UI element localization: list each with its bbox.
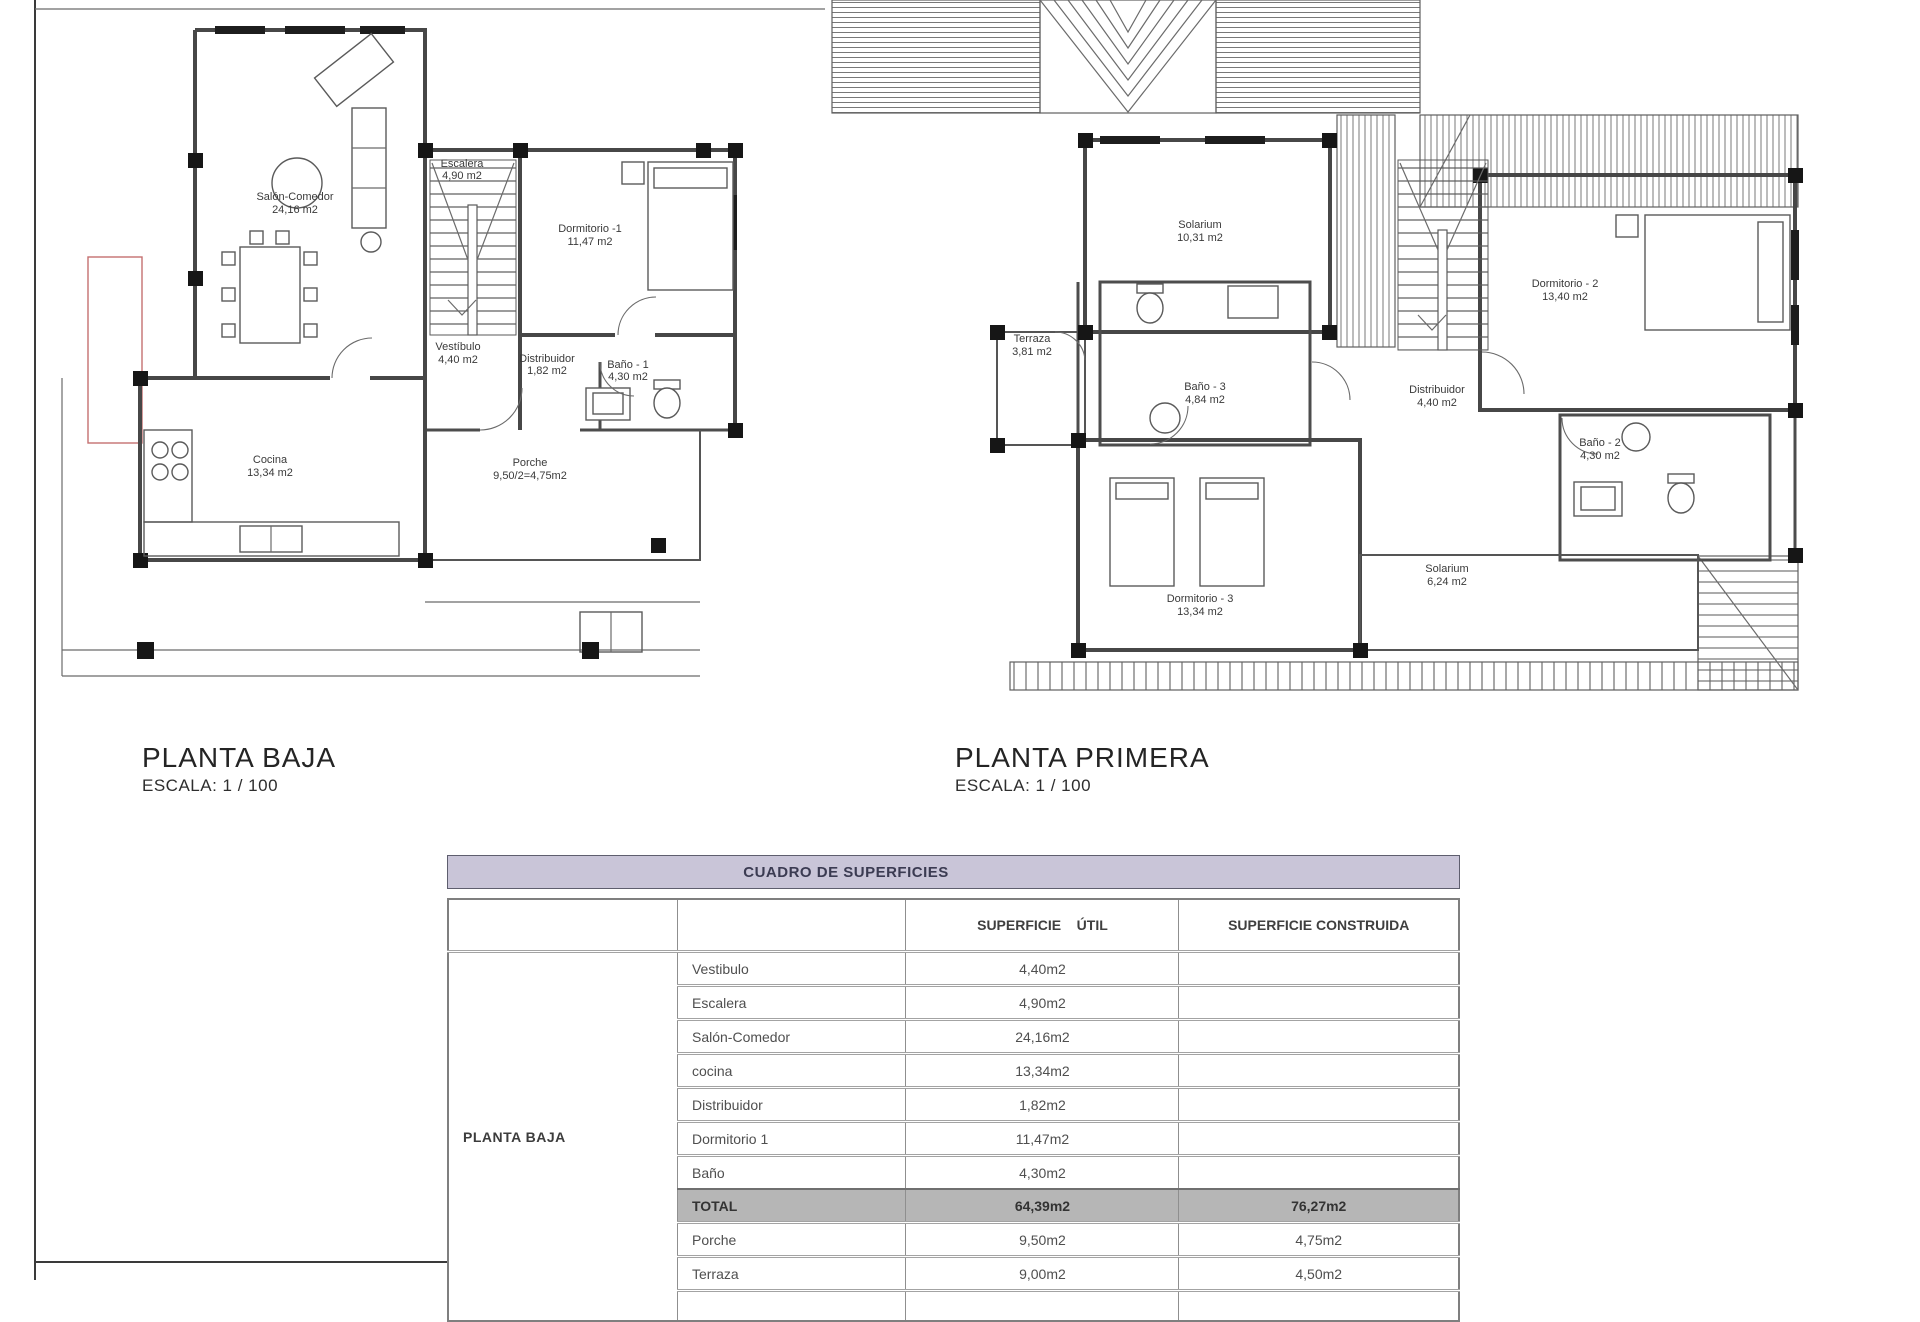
- stove-burner-icon: [152, 442, 168, 458]
- room-area: 3,81 m2: [1012, 346, 1052, 358]
- room-label: Cocina: [253, 454, 288, 466]
- stairs-symbol: [1398, 160, 1488, 350]
- util-cell: 64,39m2: [906, 1189, 1179, 1223]
- construida-cell: [1179, 1088, 1459, 1122]
- room-name-cell: Dormitorio 1: [677, 1122, 905, 1156]
- room-area: 4,90 m2: [442, 170, 482, 182]
- plan-title-planta-primera: PLANTA PRIMERA ESCALA: 1 / 100: [955, 742, 1210, 796]
- plan-title-text: PLANTA PRIMERA: [955, 742, 1210, 774]
- room-area: 4,30 m2: [1580, 450, 1620, 462]
- room-area: 11,47 m2: [567, 236, 612, 248]
- construida-cell: [1179, 1156, 1459, 1190]
- bed-symbol: [1616, 215, 1790, 330]
- room-name-cell: TOTAL: [677, 1189, 905, 1223]
- util-cell: 4,40m2: [906, 952, 1179, 986]
- construida-cell: [1179, 1020, 1459, 1054]
- construida-cell: [1179, 1291, 1459, 1322]
- room-name-cell: Baño: [677, 1156, 905, 1190]
- header-empty-cell: [677, 899, 905, 952]
- room-label: Dormitorio - 2: [1532, 278, 1599, 290]
- room-area: 4,40 m2: [438, 354, 478, 366]
- util-cell: 4,30m2: [906, 1156, 1179, 1190]
- util-cell: [906, 1291, 1179, 1322]
- construida-cell: [1179, 1054, 1459, 1088]
- architectural-sheet: { "plans": [ { "title": "PLANTA BAJA", "…: [0, 0, 1920, 1280]
- construida-cell: 4,50m2: [1179, 1257, 1459, 1291]
- room-label: Solarium: [1178, 219, 1221, 231]
- util-cell: 4,90m2: [906, 986, 1179, 1020]
- corner-steps-hatch: [1698, 556, 1798, 690]
- room-name-cell: Porche: [677, 1223, 905, 1257]
- room-name-cell: cocina: [677, 1054, 905, 1088]
- sink-icon: [1574, 482, 1622, 516]
- room-label: Distribuidor: [519, 353, 575, 365]
- construida-cell: 76,27m2: [1179, 1189, 1459, 1223]
- room-label: Baño - 3: [1184, 381, 1226, 393]
- header-empty-cell: [448, 899, 677, 952]
- room-label: Dormitorio -1: [558, 223, 622, 235]
- surface-table: SUPERFICIE ÚTIL SUPERFICIE CONSTRUIDA PL…: [447, 898, 1460, 1322]
- floor-label-cell: PLANTA BAJA: [448, 952, 677, 1322]
- stove-burner-icon: [172, 464, 188, 480]
- room-area: 10,31 m2: [1177, 232, 1223, 244]
- room-label: Solarium: [1425, 563, 1468, 575]
- dining-table-symbol: [222, 231, 317, 343]
- room-labels-planta-primera: Solarium 10,31 m2 Terraza 3,81 m2 Baño -…: [1012, 219, 1621, 618]
- toilet-icon: [1668, 474, 1694, 513]
- sink-icon: [586, 388, 630, 420]
- sink-icon: [1228, 286, 1278, 318]
- bed-symbol: [622, 162, 733, 290]
- room-name-cell: Distribuidor: [677, 1088, 905, 1122]
- room-area: 9,50/2=4,75m2: [493, 470, 567, 482]
- window-icon: [1791, 305, 1799, 345]
- room-label: Baño - 2: [1579, 437, 1621, 449]
- bed-symbol: [1110, 478, 1264, 586]
- toilet-icon: [1137, 284, 1163, 323]
- plan-title-text: PLANTA BAJA: [142, 742, 336, 774]
- construida-cell: [1179, 1122, 1459, 1156]
- table-row: PLANTA BAJA Vestibulo 4,40m2: [448, 952, 1459, 986]
- solarium2-outline: [1360, 555, 1698, 650]
- kitchen-counter: [144, 430, 399, 556]
- room-area: 4,30 m2: [608, 371, 648, 383]
- room-label: Vestíbulo: [435, 341, 480, 353]
- room-label: Baño - 1: [607, 359, 649, 371]
- room-area: 4,84 m2: [1185, 394, 1225, 406]
- room-label: Porche: [513, 457, 548, 469]
- table-header-row: SUPERFICIE ÚTIL SUPERFICIE CONSTRUIDA: [448, 899, 1459, 952]
- window-icon: [1205, 136, 1265, 144]
- toilet-icon: [654, 380, 680, 418]
- room-label: Distribuidor: [1409, 384, 1465, 396]
- plan-title-planta-baja: PLANTA BAJA ESCALA: 1 / 100: [142, 742, 336, 796]
- util-cell: 1,82m2: [906, 1088, 1179, 1122]
- window-icon: [360, 26, 405, 34]
- construida-cell: [1179, 952, 1459, 986]
- surface-table-title: CUADRO DE SUPERFICIES: [447, 855, 1460, 889]
- side-table-symbol: [361, 232, 381, 252]
- room-label: Escalera: [441, 158, 485, 170]
- room-area: 13,34 m2: [1177, 606, 1223, 618]
- room-area: 4,40 m2: [1417, 397, 1457, 409]
- stairs-symbol: [430, 160, 516, 335]
- util-cell: 24,16m2: [906, 1020, 1179, 1054]
- room-name-cell: [677, 1291, 905, 1322]
- stove-burner-icon: [172, 442, 188, 458]
- util-cell: 9,50m2: [906, 1223, 1179, 1257]
- util-cell: 11,47m2: [906, 1122, 1179, 1156]
- surface-table-block: CUADRO DE SUPERFICIES SUPERFICIE ÚTIL SU…: [447, 855, 1460, 1322]
- util-cell: 9,00m2: [906, 1257, 1179, 1291]
- room-name-cell: Terraza: [677, 1257, 905, 1291]
- room-area: 24,16 m2: [272, 204, 318, 216]
- shower-icon: [1150, 403, 1180, 433]
- construida-cell: [1179, 986, 1459, 1020]
- window-icon: [1791, 230, 1799, 280]
- plan-scale-text: ESCALA: 1 / 100: [142, 776, 336, 796]
- room-area: 13,34 m2: [247, 467, 293, 479]
- floor-plan-planta-baja: Salón-Comedor 24,16 m2 Escalera 4,90 m2 …: [62, 26, 743, 676]
- floor-plan-planta-primera: Solarium 10,31 m2 Terraza 3,81 m2 Baño -…: [832, 0, 1803, 690]
- header-superficie-construida: SUPERFICIE CONSTRUIDA: [1179, 899, 1459, 952]
- stove-burner-icon: [152, 464, 168, 480]
- door-arcs: [1055, 332, 1598, 454]
- sink-icon: [1622, 423, 1650, 451]
- header-superficie-util: SUPERFICIE ÚTIL: [906, 899, 1179, 952]
- window-icon: [215, 26, 265, 34]
- setback-outline: [88, 257, 142, 443]
- construida-cell: 4,75m2: [1179, 1223, 1459, 1257]
- room-area: 13,40 m2: [1542, 291, 1588, 303]
- terrace-band-hatch: [1010, 662, 1798, 690]
- room-label: Terraza: [1014, 333, 1052, 345]
- room-name-cell: Salón-Comedor: [677, 1020, 905, 1054]
- window-icon: [1100, 136, 1160, 144]
- window-icon: [285, 26, 345, 34]
- room-label: Salón-Comedor: [256, 191, 333, 203]
- plan-scale-text: ESCALA: 1 / 100: [955, 776, 1210, 796]
- room-name-cell: Vestibulo: [677, 952, 905, 986]
- room-label: Dormitorio - 3: [1167, 593, 1234, 605]
- util-cell: 13,34m2: [906, 1054, 1179, 1088]
- room-name-cell: Escalera: [677, 986, 905, 1020]
- room-area: 6,24 m2: [1427, 576, 1467, 588]
- room-area: 1,82 m2: [527, 365, 567, 377]
